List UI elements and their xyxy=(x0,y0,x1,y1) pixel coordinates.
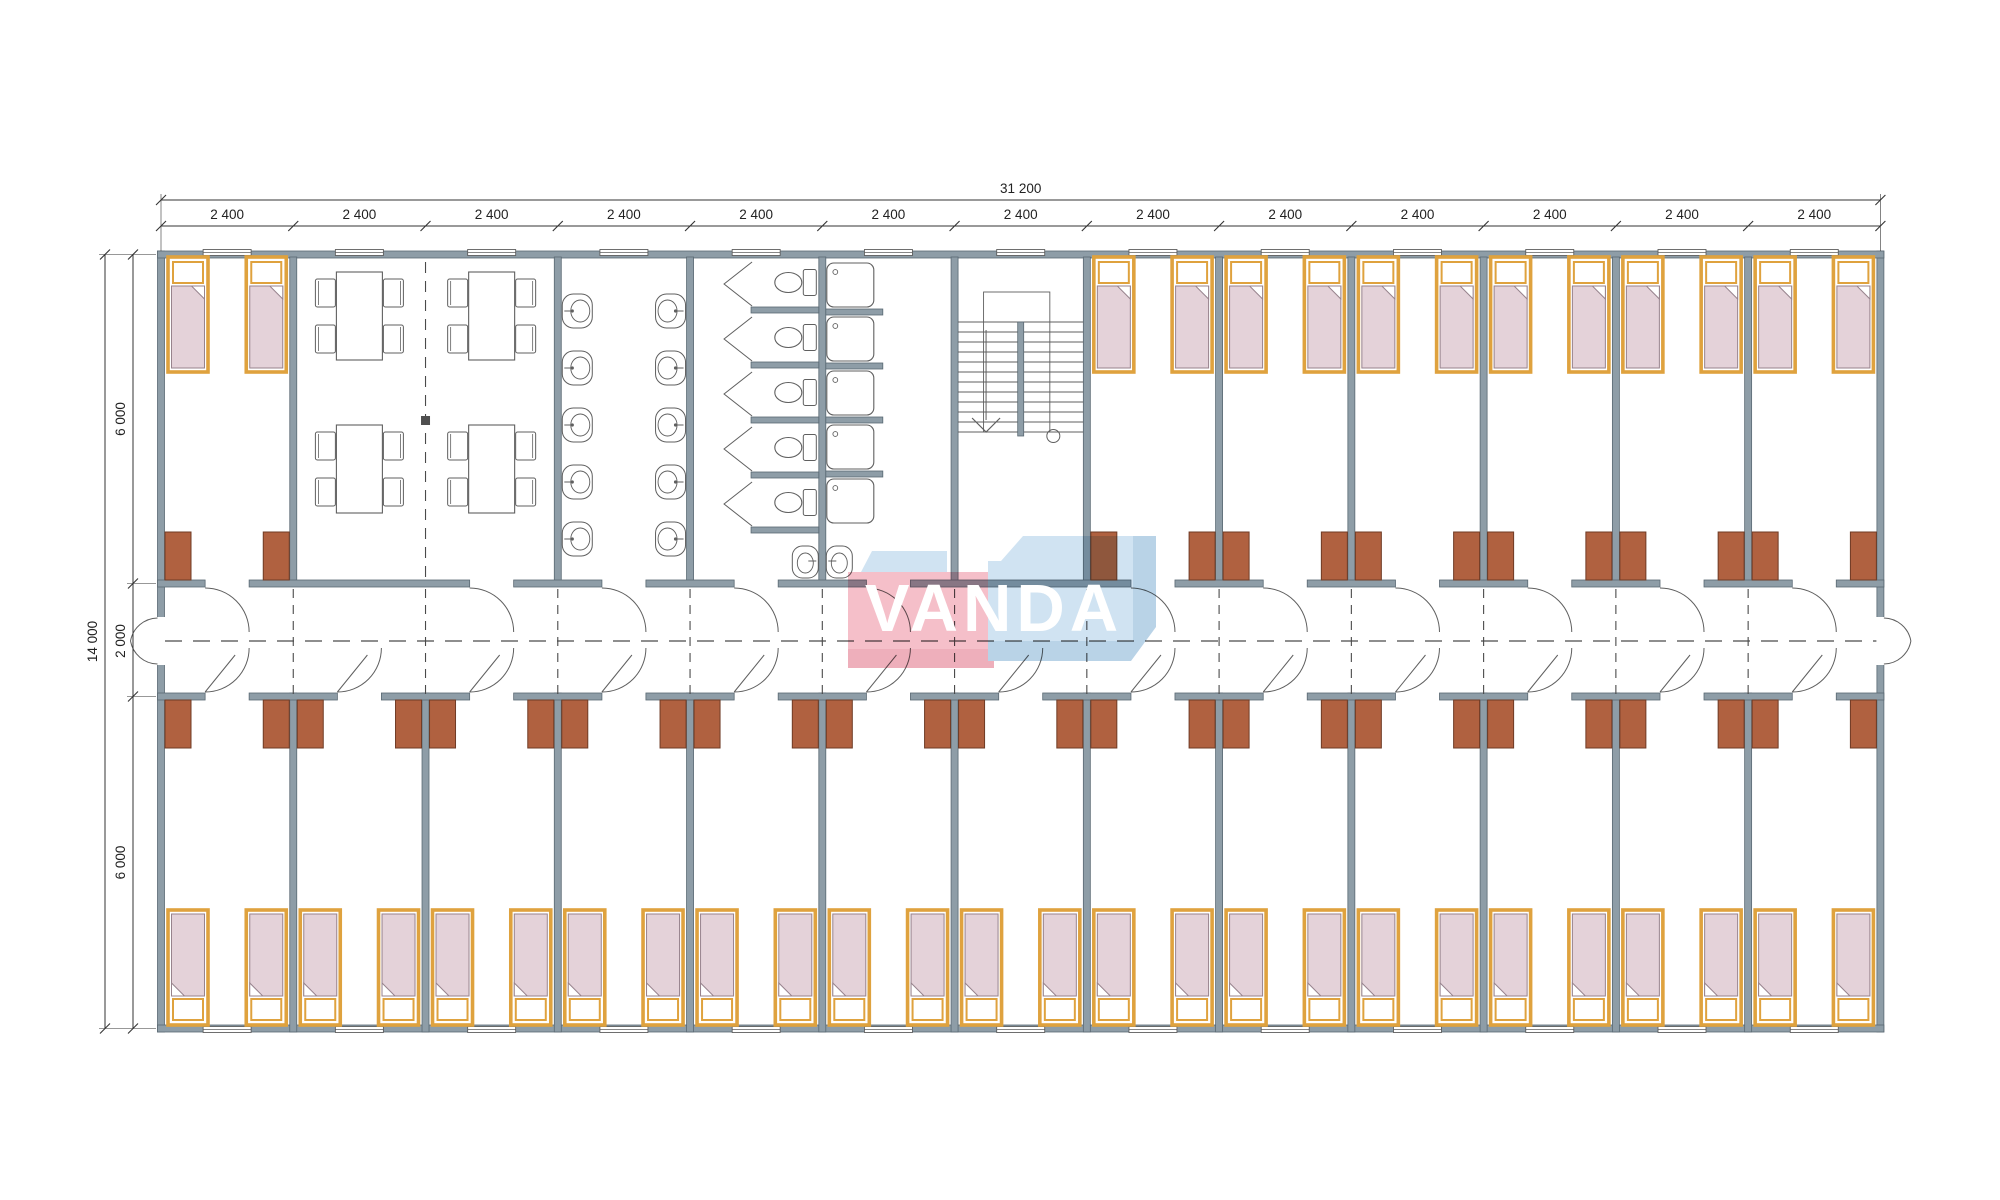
door-leaf-line xyxy=(1660,655,1690,692)
mattress xyxy=(1626,914,1659,996)
chair xyxy=(315,279,335,307)
dimension-label: 6 000 xyxy=(113,846,128,880)
mattress xyxy=(1705,286,1738,368)
door-leaf xyxy=(1620,700,1646,748)
bed xyxy=(433,910,473,1025)
corridor-wall-south xyxy=(249,693,337,700)
stall-door-icon xyxy=(724,427,752,471)
dining-table xyxy=(469,272,515,360)
shower-partition xyxy=(826,309,883,315)
chair xyxy=(315,478,335,506)
pillow xyxy=(913,999,943,1020)
door-leaf-line xyxy=(1263,655,1293,692)
toilet-stall-partition xyxy=(751,472,819,478)
mattress xyxy=(1308,914,1341,996)
mattress xyxy=(250,286,283,368)
mattress xyxy=(1572,914,1605,996)
dimension-label: 2 400 xyxy=(1004,207,1038,222)
door-leaf xyxy=(1620,532,1646,580)
door-swing-arc xyxy=(1263,588,1307,632)
dining-table xyxy=(469,425,515,513)
tap-icon xyxy=(674,480,677,483)
corridor-wall-north xyxy=(1704,580,1792,587)
sink xyxy=(656,294,686,328)
door-swing-arc xyxy=(602,648,646,692)
stall-door-icon xyxy=(724,262,752,306)
door-leaf xyxy=(1189,532,1215,580)
bed xyxy=(168,257,208,372)
chair xyxy=(448,325,468,353)
dimension-label: 14 000 xyxy=(85,621,100,662)
bed xyxy=(1569,910,1609,1025)
shower-tray xyxy=(827,317,874,361)
corridor-wall-south xyxy=(910,693,998,700)
dining-table xyxy=(336,425,382,513)
partition-wall-top-band xyxy=(819,257,826,581)
door-swing-arc xyxy=(734,648,778,692)
sink xyxy=(562,351,592,385)
bed xyxy=(1491,910,1531,1025)
pillow xyxy=(1099,262,1129,283)
bed xyxy=(1172,257,1212,372)
bed xyxy=(829,910,869,1025)
door-swing-arc xyxy=(1395,588,1439,632)
corridor-wall-south xyxy=(1836,693,1884,700)
pillow xyxy=(1838,262,1868,283)
mattress xyxy=(1494,914,1527,996)
shower-partition xyxy=(826,471,883,477)
toilet-stall-partition xyxy=(751,362,819,368)
partition-wall-bottom-band xyxy=(1480,693,1487,1032)
bed xyxy=(1833,257,1873,372)
bed xyxy=(565,910,605,1025)
mattress xyxy=(436,914,469,996)
sink xyxy=(562,408,592,442)
bed xyxy=(1358,257,1398,372)
dimension-label: 2 400 xyxy=(1268,207,1302,222)
mattress xyxy=(1362,286,1395,368)
partition-wall-bottom-band xyxy=(1216,693,1223,1032)
sink xyxy=(562,294,592,328)
pillow xyxy=(1231,999,1261,1020)
partition-wall-bottom-band xyxy=(819,693,826,1032)
toilet-stall-partition xyxy=(751,307,819,313)
joint-marker-icon xyxy=(421,416,430,425)
partition-wall-bottom-band xyxy=(422,693,429,1032)
exit-door-swing-arc xyxy=(1884,641,1911,664)
corridor-wall-north xyxy=(158,580,206,587)
chair xyxy=(383,432,403,460)
mattress xyxy=(911,914,944,996)
dimension-label: 2 400 xyxy=(1665,207,1699,222)
dimension-label: 2 000 xyxy=(113,624,128,658)
door-swing-arc xyxy=(734,588,778,632)
bed xyxy=(1491,257,1531,372)
partition-wall-top-band xyxy=(1480,257,1487,581)
pillow xyxy=(1760,999,1790,1020)
pillow xyxy=(173,262,203,283)
mattress xyxy=(1043,914,1076,996)
door-leaf-line xyxy=(470,655,500,692)
shower-tray xyxy=(827,371,874,415)
mattress xyxy=(382,914,415,996)
pillow xyxy=(1177,999,1207,1020)
sink xyxy=(656,408,686,442)
sink xyxy=(656,522,686,556)
cistern-icon xyxy=(803,380,816,406)
bed xyxy=(1755,910,1795,1025)
corridor-wall-north xyxy=(514,580,602,587)
door-swing-arc xyxy=(1792,648,1836,692)
door-leaf xyxy=(1355,700,1381,748)
corridor-wall-south xyxy=(381,693,469,700)
door-swing-arc xyxy=(1528,648,1572,692)
door-leaf xyxy=(1718,700,1744,748)
dimension-label: 2 400 xyxy=(1797,207,1831,222)
bed xyxy=(511,910,551,1025)
partition-wall-bottom-band xyxy=(687,693,694,1032)
toilet xyxy=(775,270,817,296)
door-leaf xyxy=(1223,700,1249,748)
dimension-label: 2 400 xyxy=(1533,207,1567,222)
dimension-label: 2 400 xyxy=(475,207,509,222)
corridor-wall-south xyxy=(1704,693,1792,700)
mattress xyxy=(965,914,998,996)
corridor-wall-north xyxy=(1307,580,1395,587)
partition-wall-bottom-band xyxy=(554,693,561,1032)
partition-wall-top-band xyxy=(554,257,561,581)
pillow xyxy=(834,999,864,1020)
door-leaf xyxy=(1488,700,1514,748)
door-leaf xyxy=(430,700,456,748)
tap-icon xyxy=(571,423,574,426)
door-leaf-line xyxy=(602,655,632,692)
mattress xyxy=(1097,914,1130,996)
fixtures xyxy=(315,262,1083,578)
mattress xyxy=(1362,914,1395,996)
mattress xyxy=(1176,286,1209,368)
corridor-wall-north xyxy=(1175,580,1263,587)
chair xyxy=(516,432,536,460)
bed xyxy=(1755,257,1795,372)
door-leaf xyxy=(562,700,588,748)
chair xyxy=(383,478,403,506)
bed xyxy=(1623,257,1663,372)
toilet xyxy=(775,380,817,406)
exit-door-swing-arc xyxy=(1884,618,1911,641)
stall-door-icon xyxy=(724,482,752,526)
shower-tray xyxy=(827,263,874,307)
door-leaf xyxy=(1718,532,1744,580)
door-swing-arc xyxy=(1131,648,1175,692)
door-leaf xyxy=(1586,532,1612,580)
sink xyxy=(562,522,592,556)
bowl-icon xyxy=(775,493,802,513)
pillow xyxy=(1574,999,1604,1020)
logo-block-pink-shade xyxy=(848,649,994,668)
toilet xyxy=(775,325,817,351)
corridor-wall-south xyxy=(158,693,206,700)
mattress xyxy=(833,914,866,996)
toilet xyxy=(775,435,817,461)
door-leaf xyxy=(1752,532,1778,580)
corridor-wall-north xyxy=(1836,580,1884,587)
bed xyxy=(1226,910,1266,1025)
partition-wall-top-band xyxy=(1348,257,1355,581)
toilet-stall-partition xyxy=(751,417,819,423)
stall-door-icon xyxy=(724,372,752,416)
bed xyxy=(168,910,208,1025)
pillow xyxy=(1045,999,1075,1020)
door-swing-arc xyxy=(470,648,514,692)
mattress xyxy=(647,914,680,996)
partition-wall-top-band xyxy=(687,257,694,581)
partition-wall-bottom-band xyxy=(1612,693,1619,1032)
partition-wall-bottom-band xyxy=(951,693,958,1032)
mattress xyxy=(1572,286,1605,368)
bed xyxy=(1701,910,1741,1025)
bowl-icon xyxy=(775,273,802,293)
corridor-wall-north xyxy=(1572,580,1660,587)
door-leaf xyxy=(694,700,720,748)
tap-icon xyxy=(674,366,677,369)
door-leaf xyxy=(1454,700,1480,748)
door-leaf xyxy=(1223,532,1249,580)
door-leaf-line xyxy=(1131,655,1161,692)
door-leaf xyxy=(1057,700,1083,748)
bed xyxy=(1833,910,1873,1025)
mattress xyxy=(1837,914,1870,996)
bed xyxy=(1623,910,1663,1025)
bed xyxy=(1437,257,1477,372)
pillow xyxy=(305,999,335,1020)
mattress xyxy=(568,914,601,996)
mattress xyxy=(1308,286,1341,368)
door-leaf xyxy=(1586,700,1612,748)
partition-wall-top-band xyxy=(1745,257,1752,581)
cistern-icon xyxy=(803,325,816,351)
cistern-icon xyxy=(803,270,816,296)
door-leaf xyxy=(1321,532,1347,580)
corridor-wall-south xyxy=(1439,693,1527,700)
door-leaf-line xyxy=(734,655,764,692)
dimension-label: 2 400 xyxy=(210,207,244,222)
tap-icon xyxy=(571,537,574,540)
floor-plan-canvas: 31 2002 4002 4002 4002 4002 4002 4002 40… xyxy=(0,0,2000,1200)
corridor-wall-north xyxy=(1439,580,1527,587)
logo-text: VANDA xyxy=(865,571,1123,646)
door-leaf xyxy=(1752,700,1778,748)
corridor-wall-south xyxy=(1572,693,1660,700)
mattress xyxy=(304,914,337,996)
mattress xyxy=(1230,914,1263,996)
bed xyxy=(246,257,286,372)
partition-wall-bottom-band xyxy=(1745,693,1752,1032)
dimension-label: 2 400 xyxy=(342,207,376,222)
stair-divider xyxy=(1018,322,1024,436)
mattress xyxy=(1837,286,1870,368)
partition-wall-top-band xyxy=(1612,257,1619,581)
corridor-wall-north xyxy=(249,580,470,587)
mattress xyxy=(1440,286,1473,368)
door-swing-arc xyxy=(1395,648,1439,692)
corridor-wall-south xyxy=(1307,693,1395,700)
bed xyxy=(1226,257,1266,372)
bed xyxy=(908,910,948,1025)
dimension-label: 2 400 xyxy=(872,207,906,222)
mattress xyxy=(779,914,812,996)
chair xyxy=(516,325,536,353)
mattress xyxy=(172,914,205,996)
pillow xyxy=(702,999,732,1020)
corridor-wall-south xyxy=(778,693,866,700)
mattress xyxy=(1759,286,1792,368)
pillow xyxy=(251,262,281,283)
bed xyxy=(1094,910,1134,1025)
pillow xyxy=(1838,999,1868,1020)
door-swing-arc xyxy=(602,588,646,632)
bowl-icon xyxy=(775,438,802,458)
corridor-east-opening xyxy=(1876,617,1885,665)
door-leaf xyxy=(396,700,422,748)
pillow xyxy=(516,999,546,1020)
door-leaf-line xyxy=(337,655,367,692)
corridor-wall-south xyxy=(514,693,602,700)
chair xyxy=(516,279,536,307)
door-swing-arc xyxy=(337,648,381,692)
pillow xyxy=(1496,262,1526,283)
pillow xyxy=(1706,262,1736,283)
mattress xyxy=(1230,286,1263,368)
partition-wall-bottom-band xyxy=(290,693,297,1032)
staircase xyxy=(958,292,1083,443)
door-leaf xyxy=(925,700,951,748)
bed xyxy=(962,910,1002,1025)
bed xyxy=(697,910,737,1025)
door-leaf-line xyxy=(1395,655,1425,692)
mattress xyxy=(1626,286,1659,368)
pillow xyxy=(1442,999,1472,1020)
bed xyxy=(1358,910,1398,1025)
dimension-label: 2 400 xyxy=(607,207,641,222)
pillow xyxy=(1309,262,1339,283)
shower-partition xyxy=(826,363,883,369)
door-leaf xyxy=(528,700,554,748)
pillow xyxy=(1363,262,1393,283)
mattress xyxy=(250,914,283,996)
sink xyxy=(792,546,818,578)
mattress xyxy=(1705,914,1738,996)
floor-plan-drawing: 31 2002 4002 4002 4002 4002 4002 4002 40… xyxy=(0,0,2000,1200)
bed xyxy=(1437,910,1477,1025)
cistern-icon xyxy=(803,490,816,516)
dimension-label: 2 400 xyxy=(739,207,773,222)
door-leaf xyxy=(1321,700,1347,748)
partition-wall-top-band xyxy=(1083,257,1090,581)
bed xyxy=(1701,257,1741,372)
bowl-icon xyxy=(775,383,802,403)
tap-icon xyxy=(674,423,677,426)
door-leaf-line xyxy=(205,655,235,692)
corridor-west-opening xyxy=(157,617,166,665)
dimension-label: 31 200 xyxy=(1000,181,1041,196)
partition-wall-top-band xyxy=(290,257,297,581)
shower-tray xyxy=(827,425,874,469)
door-leaf xyxy=(263,700,289,748)
sink xyxy=(656,465,686,499)
corridor-wall-south xyxy=(1175,693,1263,700)
chair xyxy=(315,325,335,353)
chair xyxy=(383,279,403,307)
logo-block-blue-small xyxy=(861,551,947,572)
cistern-icon xyxy=(803,435,816,461)
door-leaf xyxy=(263,532,289,580)
toilet xyxy=(775,490,817,516)
bowl-icon xyxy=(775,328,802,348)
door-swing-arc xyxy=(1528,588,1572,632)
pillow xyxy=(570,999,600,1020)
door-leaf xyxy=(1189,700,1215,748)
door-leaf xyxy=(165,532,191,580)
tap-icon xyxy=(674,309,677,312)
door-leaf xyxy=(1850,700,1876,748)
bed xyxy=(1304,257,1344,372)
dimension-label: 2 400 xyxy=(1136,207,1170,222)
exit-door-swing-arc xyxy=(131,618,158,641)
corridor-wall-south xyxy=(646,693,734,700)
pillow xyxy=(1628,262,1658,283)
pillow xyxy=(1231,262,1261,283)
pillow xyxy=(1574,262,1604,283)
stall-door-icon xyxy=(724,317,752,361)
pillow xyxy=(1363,999,1393,1020)
door-swing-arc xyxy=(1263,648,1307,692)
partition-wall-bottom-band xyxy=(1348,693,1355,1032)
toilet-stall-partition xyxy=(751,527,819,533)
corridor-wall-north xyxy=(646,580,734,587)
door-swing-arc xyxy=(1660,588,1704,632)
dimension-label: 2 400 xyxy=(1401,207,1435,222)
sink xyxy=(656,351,686,385)
chair xyxy=(448,279,468,307)
bed xyxy=(1304,910,1344,1025)
pillow xyxy=(967,999,997,1020)
door-leaf xyxy=(165,700,191,748)
dimension-label: 6 000 xyxy=(113,402,128,436)
door-leaf xyxy=(1091,700,1117,748)
door-leaf xyxy=(826,700,852,748)
mattress xyxy=(1440,914,1473,996)
pillow xyxy=(251,999,281,1020)
bed xyxy=(1040,910,1080,1025)
door-swing-arc xyxy=(1660,648,1704,692)
door-swing-arc xyxy=(470,588,514,632)
door-swing-arc xyxy=(205,648,249,692)
pillow xyxy=(648,999,678,1020)
tap-icon xyxy=(571,366,574,369)
chair xyxy=(448,432,468,460)
bed xyxy=(1569,257,1609,372)
exit-door-swing-arc xyxy=(131,641,158,664)
door-leaf xyxy=(1355,532,1381,580)
shower-tray xyxy=(827,479,874,523)
pillow xyxy=(780,999,810,1020)
pillow xyxy=(384,999,414,1020)
bed xyxy=(1172,910,1212,1025)
tap-icon xyxy=(571,480,574,483)
door-leaf xyxy=(1454,532,1480,580)
partition-wall-top-band xyxy=(951,257,958,581)
